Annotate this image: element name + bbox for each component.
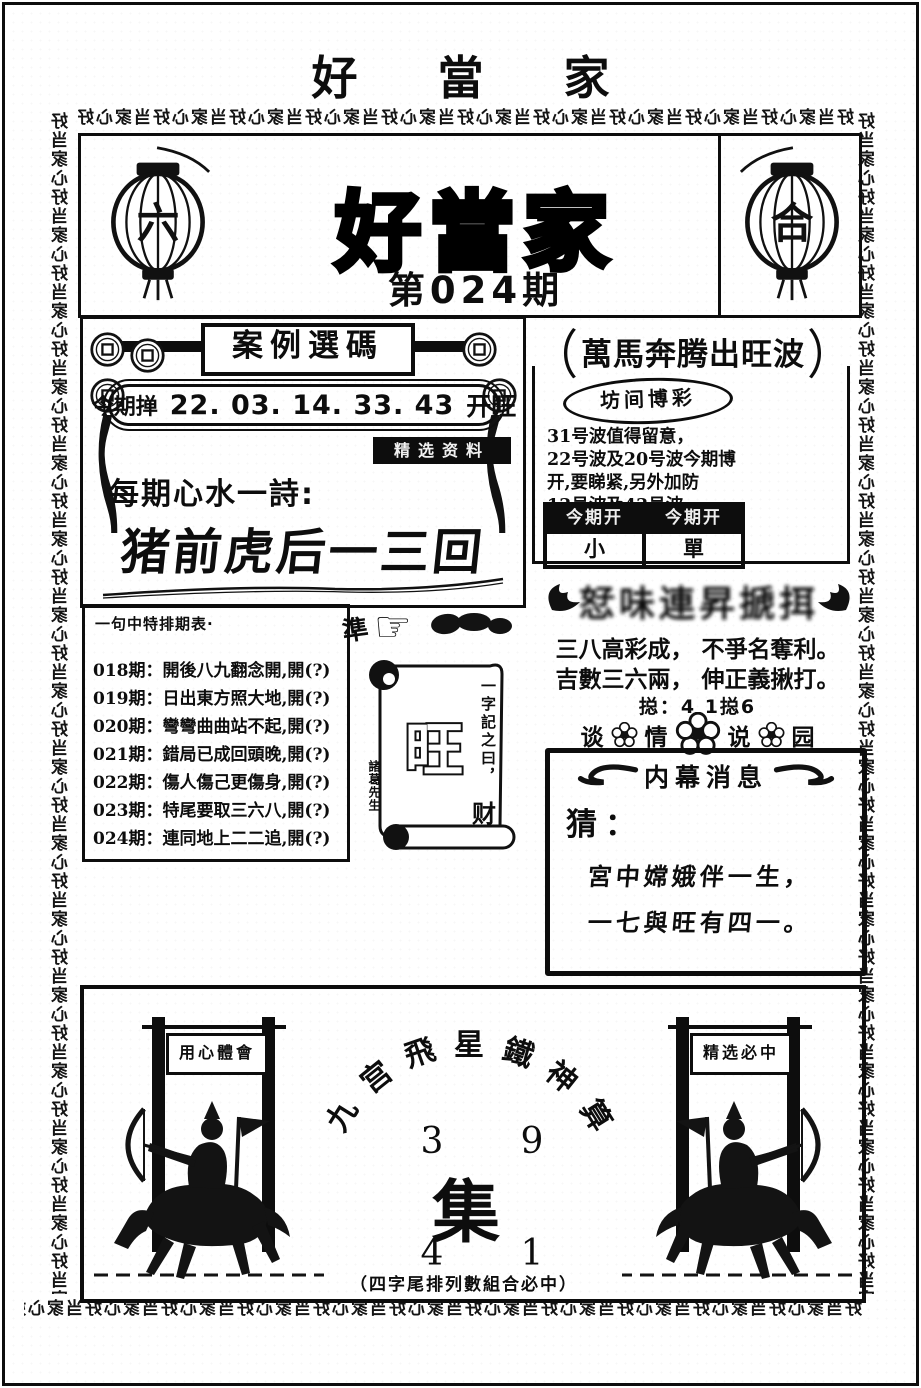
issue-number: 第024期 xyxy=(241,260,711,314)
header-divider xyxy=(718,136,721,315)
arc-title-char: 宫 xyxy=(353,1055,401,1103)
scroll-word: 旺 xyxy=(405,716,463,784)
inverted-tag: 精选资料 xyxy=(373,437,511,464)
draw-numbers: 22. 03. 14. 33. 43 xyxy=(170,390,455,421)
grid-number-bottom-left: 4 xyxy=(402,1233,462,1274)
ink-smudge-icon xyxy=(428,606,518,644)
bottom-panel: 用心體會 精选必中 九宫飛星鐵神算 3 9 集 4 1 （四字尾排列數組合必中） xyxy=(80,985,866,1303)
insider-title: 内幕消息 xyxy=(644,758,768,794)
border-strip-left: 好当家心好当家心好当家心好当家心好当家心好当家心好当家心好当家心好当家心好当家心… xyxy=(50,112,74,1294)
lantern-right-char: 合 xyxy=(771,199,814,249)
history-panel-title: 一句中特排期表· xyxy=(95,613,214,634)
underline-swoosh-icon xyxy=(95,573,511,601)
coin-icon xyxy=(461,331,498,368)
insider-line1: 宮中嫦娥伴一生， xyxy=(586,857,813,892)
scroll-caption: 一字記之曰， xyxy=(478,678,499,786)
grid-number-top-left: 3 xyxy=(402,1121,462,1162)
wave-oval-label: 坊间博彩 xyxy=(562,375,734,427)
arc-title-char: 神 xyxy=(538,1055,586,1103)
flower-line-char: 园 xyxy=(792,718,815,752)
history-panel: 一句中特排期表· 018期：開後八九翻念開,開(?)019期：日出東方照大地,開… xyxy=(82,604,350,862)
arc-title-char: 算 xyxy=(571,1092,618,1139)
arc-title-char: 鐵 xyxy=(496,1033,539,1076)
header-box: 六 好當家 第024期 合 xyxy=(78,133,862,318)
advice-line: 开,要睇紧,另外加防 xyxy=(547,472,845,495)
history-row: 023期：特尾要取三六八,開(?) xyxy=(93,797,345,825)
grid-number-bottom-right: 1 xyxy=(502,1233,562,1274)
lantern-right-icon: 合 xyxy=(729,144,855,302)
lantern-left-char: 六 xyxy=(137,199,180,249)
flower-line-char: 谈 xyxy=(581,718,604,752)
flower-line-char: 说 xyxy=(728,718,751,752)
coin-icon xyxy=(129,337,166,374)
wave-panel-box: 坊间博彩 31号波值得留意， 22号波及20号波今期博 开,要睇紧,另外加防 1… xyxy=(532,366,850,564)
scroll-answer: 财 xyxy=(472,794,496,829)
gate-beam xyxy=(668,1025,812,1029)
draw-oval: 今期掸 22. 03. 14. 33. 43 开旺 xyxy=(103,379,505,431)
coin-icon xyxy=(89,331,126,368)
smudged-banner-text: 恏味連昇搋挕 xyxy=(579,584,819,625)
lantern-left-icon: 六 xyxy=(95,144,221,302)
table-header-cell: 今期开 xyxy=(545,504,644,532)
history-row: 024期：連同地上二二追,開(?) xyxy=(93,825,345,853)
right-gate-banner: 精选必中 xyxy=(690,1033,792,1075)
poem-label: 每期心水一詩: xyxy=(109,469,315,513)
lottery-sheet-page: 好 當 家 好当家心好当家心好当家心好当家心好当家心好当家心好当家心好当家心好当… xyxy=(0,0,921,1388)
insider-panel: 内幕消息 猜： 宮中嫦娥伴一生， 一七與旺有四一。 xyxy=(545,748,867,976)
history-row: 018期：開後八九翻念開,開(?) xyxy=(93,657,345,685)
scroll-signature: 諸葛先生 xyxy=(366,760,383,812)
accuracy-char: 準 xyxy=(340,608,371,648)
history-row: 022期：傷人傷己更傷身,開(?) xyxy=(93,769,345,797)
tips-poem-line2: 吉數三六兩， 伸正義揪打。 xyxy=(535,660,860,694)
pointing-finger-icon: ☞ xyxy=(374,602,412,651)
wave-panel: （ 萬馬奔腾出旺波 ） 坊间博彩 31号波值得留意， 22号波及20号波今期博 … xyxy=(528,318,858,568)
flower-icon xyxy=(758,722,785,749)
warrior-horseman-left-icon xyxy=(84,1067,334,1287)
history-row: 019期：日出東方照大地,開(?) xyxy=(93,685,345,713)
history-row: 021期：錯局已成回頭晚,開(?) xyxy=(93,741,345,769)
flower-line-char: 情 xyxy=(645,718,668,752)
table-header-cell: 今期开 xyxy=(644,504,743,532)
advice-line: 22号波及20号波今期博 xyxy=(547,449,845,472)
history-row: 020期：彎彎曲曲站不起,開(?) xyxy=(93,713,345,741)
arc-title-char: 星 xyxy=(452,1029,486,1063)
ribbon-tail-icon xyxy=(773,762,835,790)
ribbon-tail-icon xyxy=(577,762,639,790)
advice-line: 31号波值得留意， xyxy=(547,426,845,449)
table-value-cell: 小 xyxy=(545,532,644,567)
flower-icon xyxy=(611,722,638,749)
insider-line2: 一七與旺有四一。 xyxy=(586,903,813,938)
draw-label: 今期掸 xyxy=(92,389,158,421)
warrior-horseman-right-icon xyxy=(612,1067,862,1287)
border-strip-top: 好当家心好当家心好当家心好当家心好当家心好当家心好当家心好当家心好当家心好当家心… xyxy=(78,106,854,131)
page-title: 好 當 家 xyxy=(0,42,921,108)
gate-beam xyxy=(142,1025,286,1029)
table-value-cell: 單 xyxy=(644,532,743,567)
smudged-banner: 恏味連昇搋挕 xyxy=(540,576,858,632)
draw-result: 开旺 xyxy=(466,387,516,423)
arc-title-char: 飛 xyxy=(398,1033,441,1076)
case-panel-title: 案例選碼 xyxy=(201,323,415,376)
left-gate-banner: 用心體會 xyxy=(166,1033,268,1075)
leaf-icon xyxy=(548,584,580,611)
insider-ribbon: 内幕消息 xyxy=(550,758,862,794)
leaf-icon xyxy=(818,584,850,611)
result-table: 今期开 今期开 小 單 xyxy=(543,502,745,569)
history-rows: 018期：開後八九翻念開,開(?)019期：日出東方照大地,開(?)020期：彎… xyxy=(93,657,345,853)
guess-label: 猜： xyxy=(566,799,644,844)
draw-oval-inner: 今期掸 22. 03. 14. 33. 43 开旺 xyxy=(108,384,500,426)
grid-number-top-right: 9 xyxy=(502,1121,562,1162)
case-panel: 案例選碼 今期掸 22. 03. 14. 33. 43 开旺 精选资料 每期心水… xyxy=(80,316,526,608)
tips-poem-line1: 三八高彩成， 不爭名奪利。 xyxy=(535,630,860,664)
